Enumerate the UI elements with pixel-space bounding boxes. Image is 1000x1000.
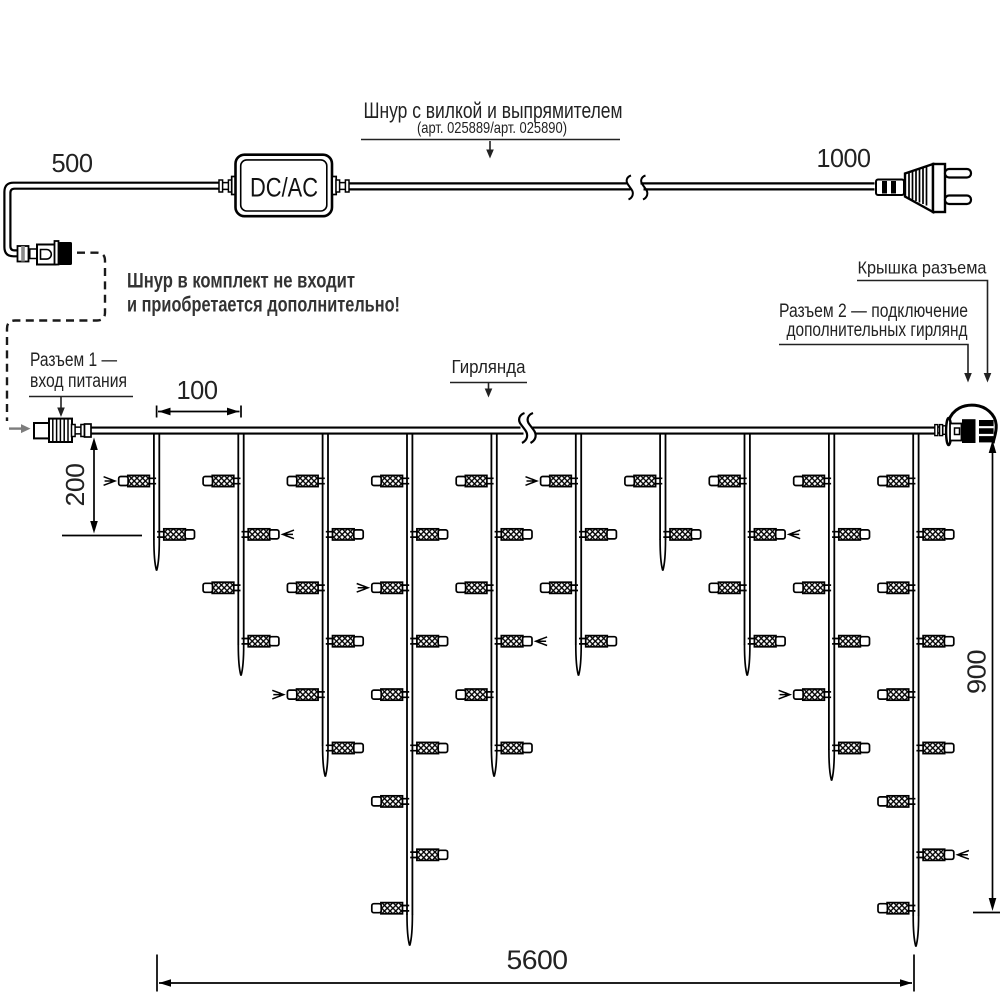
svg-text:500: 500 <box>52 148 93 178</box>
svg-text:Разъем 1 —: Разъем 1 — <box>30 350 117 371</box>
svg-text:1000: 1000 <box>817 143 871 173</box>
svg-text:(арт. 025889/арт. 025890): (арт. 025889/арт. 025890) <box>417 120 567 137</box>
svg-text:5600: 5600 <box>507 945 568 975</box>
svg-text:Разъем 2 — подключение: Разъем 2 — подключение <box>779 301 968 322</box>
svg-text:100: 100 <box>177 375 218 405</box>
svg-text:и приобретается дополнительно!: и приобретается дополнительно! <box>127 294 400 317</box>
svg-text:Гирлянда: Гирлянда <box>452 357 527 377</box>
svg-text:дополнительных гирлянд: дополнительных гирлянд <box>787 320 968 341</box>
svg-text:DC/AC: DC/AC <box>250 173 318 203</box>
svg-text:вход питания: вход питания <box>30 371 127 392</box>
svg-text:Крышка разъема: Крышка разъема <box>858 258 987 278</box>
svg-text:Шнур в комплект не входит: Шнур в комплект не входит <box>127 270 355 293</box>
svg-text:200: 200 <box>60 463 90 506</box>
svg-text:900: 900 <box>962 650 992 694</box>
